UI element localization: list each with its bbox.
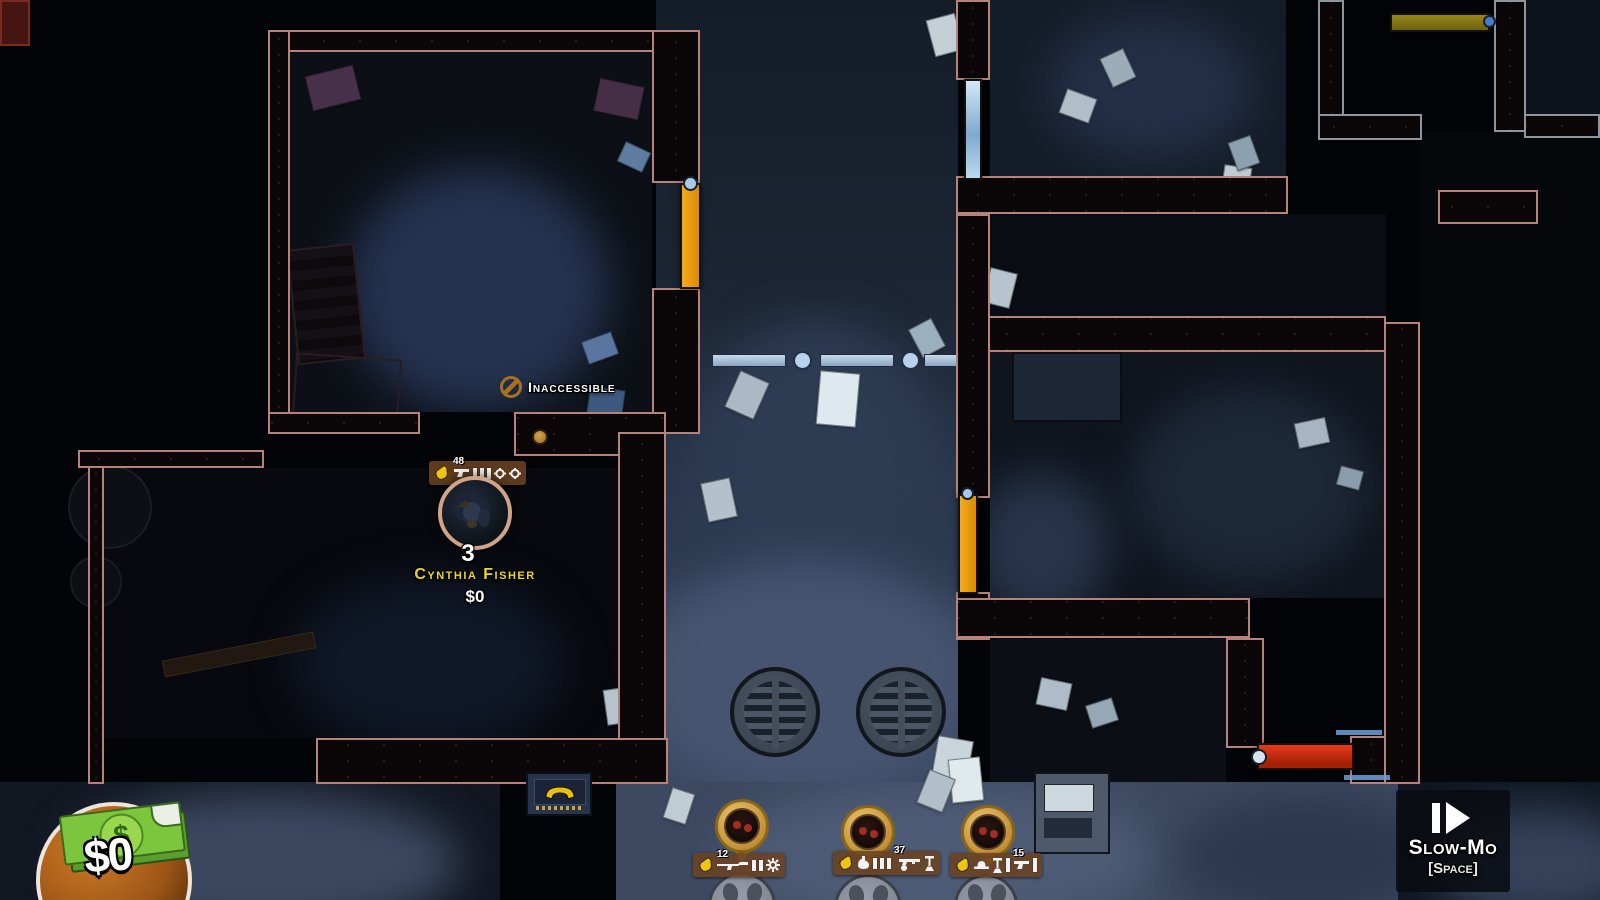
- phone-screen: [534, 779, 586, 805]
- gear-icon: [766, 858, 780, 872]
- game-viewport: Inaccessible 48: [0, 0, 1600, 900]
- head-detail: [721, 882, 740, 900]
- ammo-count: 15: [1013, 848, 1024, 859]
- portrait-pin[interactable]: [961, 805, 1015, 859]
- door-hinge: [683, 176, 698, 191]
- manhole-rib: [772, 675, 779, 749]
- laser-marker: [1344, 775, 1390, 780]
- glove-icon: [953, 856, 973, 874]
- manhole-rib: [898, 675, 905, 749]
- weapon-slot: 15: [1013, 859, 1030, 871]
- slowmo-indicator: Slow-Mo [Space]: [1396, 790, 1510, 892]
- tommy-gun-icon: [894, 856, 921, 871]
- ammo-bar: [1006, 858, 1010, 872]
- play-triangle: [1446, 802, 1470, 834]
- door-hinge: [1251, 749, 1267, 765]
- portrait-pin[interactable]: [715, 799, 769, 853]
- wall: [956, 214, 990, 498]
- portrait-face: [724, 808, 760, 844]
- phone-handset-icon: [543, 784, 577, 800]
- ammo-bar: [873, 858, 877, 869]
- no-entry-icon: [500, 376, 522, 398]
- portrait-face: [850, 814, 886, 850]
- barrel: [68, 465, 152, 549]
- floor-light-blob: [1045, 15, 1255, 160]
- wall: [78, 450, 264, 468]
- ammo-bar: [487, 468, 491, 479]
- ammo-count: 37: [894, 845, 905, 856]
- portrait-detail: [733, 821, 741, 829]
- floor-gap: [990, 214, 1386, 316]
- sniper-rifle-icon: [717, 860, 749, 871]
- door-glass-blue[interactable]: [964, 79, 982, 180]
- squad-loadout-3: 15: [950, 853, 1042, 877]
- ammo-bar: [887, 858, 891, 869]
- wall: [652, 30, 700, 183]
- bill-fold: [150, 801, 183, 828]
- money-badge: $ $0: [28, 796, 218, 900]
- floor-right-column: [1420, 132, 1600, 782]
- head-detail: [745, 882, 764, 900]
- detonator-icon: [924, 856, 935, 871]
- inaccessible-indicator: Inaccessible: [500, 376, 616, 398]
- selected-character-number: 3: [450, 540, 486, 568]
- molotov-icon: [857, 856, 870, 870]
- door-hinge: [961, 487, 974, 500]
- glove-icon: [696, 856, 716, 874]
- wall: [1524, 114, 1600, 138]
- door-orange[interactable]: [680, 183, 701, 289]
- money-amount: $0: [82, 826, 134, 884]
- ammo-count: 48: [453, 456, 464, 467]
- portrait-detail: [870, 830, 878, 838]
- floor-light-blob: [990, 472, 1110, 598]
- wall: [268, 412, 420, 434]
- wall-corner-red: [0, 0, 30, 46]
- glass-wall-segment: [712, 354, 786, 367]
- slowmo-key-hint: [Space]: [1396, 860, 1510, 877]
- manhole-cover: [856, 667, 946, 757]
- manhole-cover: [730, 667, 820, 757]
- door-red[interactable]: [1257, 743, 1354, 770]
- portrait-detail: [744, 824, 752, 832]
- head-detail: [966, 883, 985, 900]
- shelf-slot: [1044, 818, 1092, 838]
- selected-character-ring[interactable]: [438, 476, 512, 550]
- floor-light-blob: [1130, 387, 1370, 582]
- wall: [1384, 322, 1420, 784]
- glove-icon: [836, 854, 856, 872]
- wall: [1438, 190, 1538, 224]
- door-handle-dot: [532, 429, 548, 445]
- wall: [268, 30, 290, 432]
- ammo-count: 12: [717, 849, 728, 860]
- bed: [286, 243, 366, 365]
- slowmo-play-icon: [1432, 802, 1476, 834]
- character-sprite: [442, 480, 508, 546]
- squad-loadout-2: 37: [833, 851, 940, 875]
- laser-marker: [1336, 730, 1382, 735]
- head-detail: [847, 884, 866, 900]
- shelf: [1034, 772, 1110, 854]
- door-olive[interactable]: [1390, 13, 1490, 32]
- handcuffs-icon: [509, 468, 521, 479]
- wall: [1494, 0, 1526, 132]
- wall: [618, 432, 666, 744]
- pause-bar: [1432, 803, 1440, 833]
- inaccessible-label: Inaccessible: [528, 379, 616, 395]
- weapon-slot: 12: [717, 860, 749, 871]
- wall: [316, 738, 668, 784]
- wall: [268, 30, 668, 52]
- paper: [816, 370, 861, 427]
- portrait-detail: [859, 827, 867, 835]
- phone-buttons: [536, 806, 582, 810]
- ammo-bar: [880, 858, 884, 869]
- desk: [1012, 352, 1122, 422]
- glass-wall-segment: [820, 354, 894, 367]
- wall: [988, 316, 1386, 352]
- detonator-icon: [992, 858, 1003, 873]
- selected-character-cash: $0: [380, 587, 570, 607]
- ammo-bar: [752, 860, 756, 871]
- wall: [1318, 0, 1344, 132]
- wall: [956, 176, 1288, 214]
- head-detail: [871, 884, 890, 900]
- wall: [956, 0, 990, 80]
- portrait-detail: [979, 827, 987, 835]
- selected-character-name: Cynthia Fisher: [380, 566, 570, 584]
- wall-phone-panel[interactable]: [526, 772, 592, 816]
- floor-corridor: [656, 0, 958, 784]
- ammo-bar: [759, 860, 763, 871]
- door-hinge: [1483, 15, 1496, 28]
- glass-wall-post: [901, 351, 920, 370]
- squad-loadout-1: 12: [693, 853, 785, 877]
- door-orange[interactable]: [958, 494, 978, 594]
- ammo-bar: [1033, 858, 1037, 872]
- wall: [1226, 638, 1264, 748]
- handcuffs-icon: [494, 468, 506, 479]
- head-detail: [989, 883, 1008, 900]
- pistol-icon: [1013, 859, 1030, 871]
- weapon-slot: 37: [894, 856, 921, 871]
- portrait-face: [970, 814, 1006, 850]
- shelf-paper: [1044, 784, 1094, 812]
- hat-icon: [974, 860, 989, 870]
- wall: [956, 598, 1250, 638]
- floor-right-edge: [1526, 0, 1600, 114]
- wall: [88, 452, 104, 784]
- wall: [1318, 114, 1422, 140]
- slowmo-label: Slow-Mo: [1396, 836, 1510, 860]
- portrait-detail: [990, 830, 998, 838]
- glass-wall-post: [793, 351, 812, 370]
- floor-dark-blob: [1176, 792, 1398, 900]
